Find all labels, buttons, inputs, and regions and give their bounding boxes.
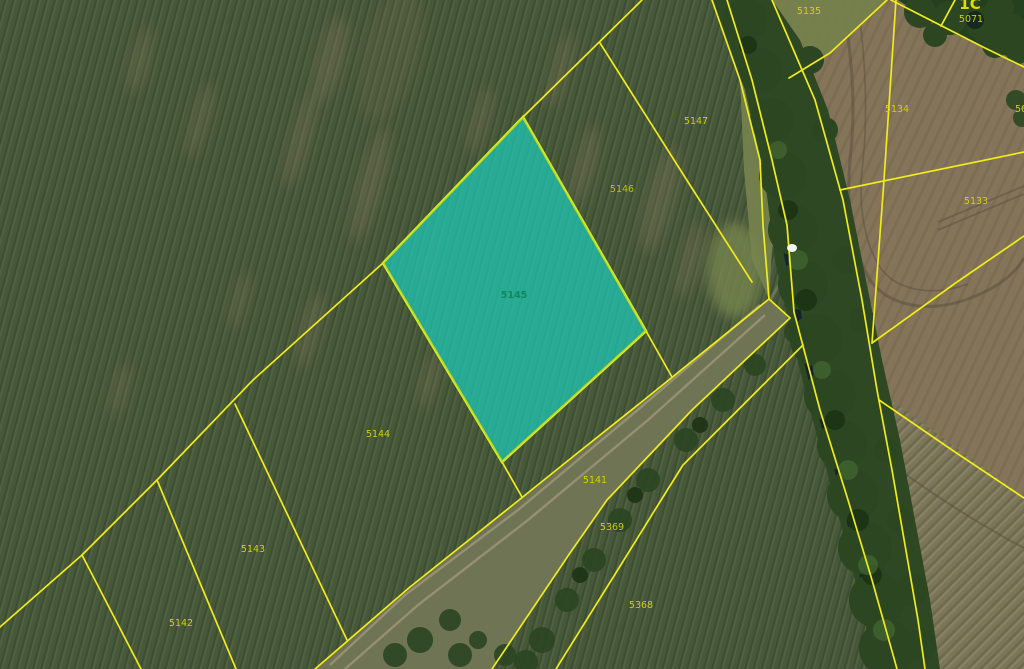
parcel-label-5133: 5133	[964, 196, 988, 207]
parcel-label-5134: 5134	[885, 104, 909, 115]
parcel-label-5369: 5369	[600, 522, 624, 533]
parcel-label-5071: 5071	[959, 14, 983, 25]
parcel-label-5147: 5147	[684, 116, 708, 127]
map-canvas[interactable]: 5147 5146 5145 5144 5143 5142 5141 5369 …	[0, 0, 1024, 669]
parcel-label-5135: 5135	[797, 6, 821, 17]
parcel-label-5144: 5144	[366, 429, 390, 440]
parcel-label-5142: 5142	[169, 618, 193, 629]
parcel-label-5368: 5368	[629, 600, 653, 611]
orthophoto-map[interactable]: 5147 5146 5145 5144 5143 5142 5141 5369 …	[0, 0, 1024, 669]
parcel-label-50-partial: 50	[1015, 104, 1024, 115]
parcel-label-5141: 5141	[583, 475, 607, 486]
parcel-label-5146: 5146	[610, 184, 634, 195]
parcel-label-5143: 5143	[241, 544, 265, 555]
highlighted-parcel-label: 5145	[501, 290, 527, 301]
area-code-label: 1C	[959, 0, 980, 13]
white-object-marker	[787, 244, 797, 252]
